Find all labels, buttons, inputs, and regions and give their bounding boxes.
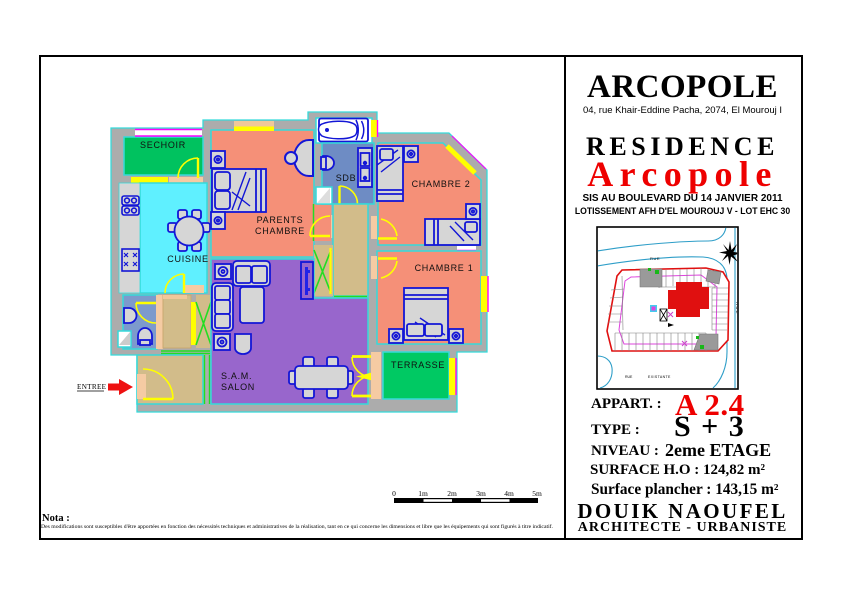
svg-text:RUE: RUE (650, 256, 660, 261)
svg-text:CUISINE: CUISINE (167, 254, 208, 264)
svg-text:3m: 3m (476, 489, 486, 498)
svg-text:2m: 2m (447, 489, 457, 498)
svg-text:5m: 5m (532, 489, 542, 498)
svg-text:CHAMBRE 2: CHAMBRE 2 (412, 179, 471, 189)
svg-text:ENTREE: ENTREE (77, 383, 107, 391)
svg-text:EXISTANTE: EXISTANTE (648, 375, 671, 379)
svg-text:S.A.M.: S.A.M. (221, 371, 252, 381)
svg-text:SECHOIR: SECHOIR (140, 140, 186, 150)
svg-text:CHAMBRE: CHAMBRE (255, 226, 305, 236)
svg-text:1m: 1m (418, 489, 428, 498)
svg-text:SALON: SALON (221, 382, 255, 392)
svg-text:CHAMBRE 1: CHAMBRE 1 (415, 263, 474, 273)
svg-text:RUE: RUE (625, 375, 633, 379)
svg-text:0: 0 (392, 489, 396, 498)
svg-text:SDB: SDB (336, 173, 357, 183)
svg-text:TERRASSE: TERRASSE (391, 360, 445, 370)
svg-text:4m: 4m (504, 489, 514, 498)
svg-text:PARENTS: PARENTS (257, 215, 304, 225)
